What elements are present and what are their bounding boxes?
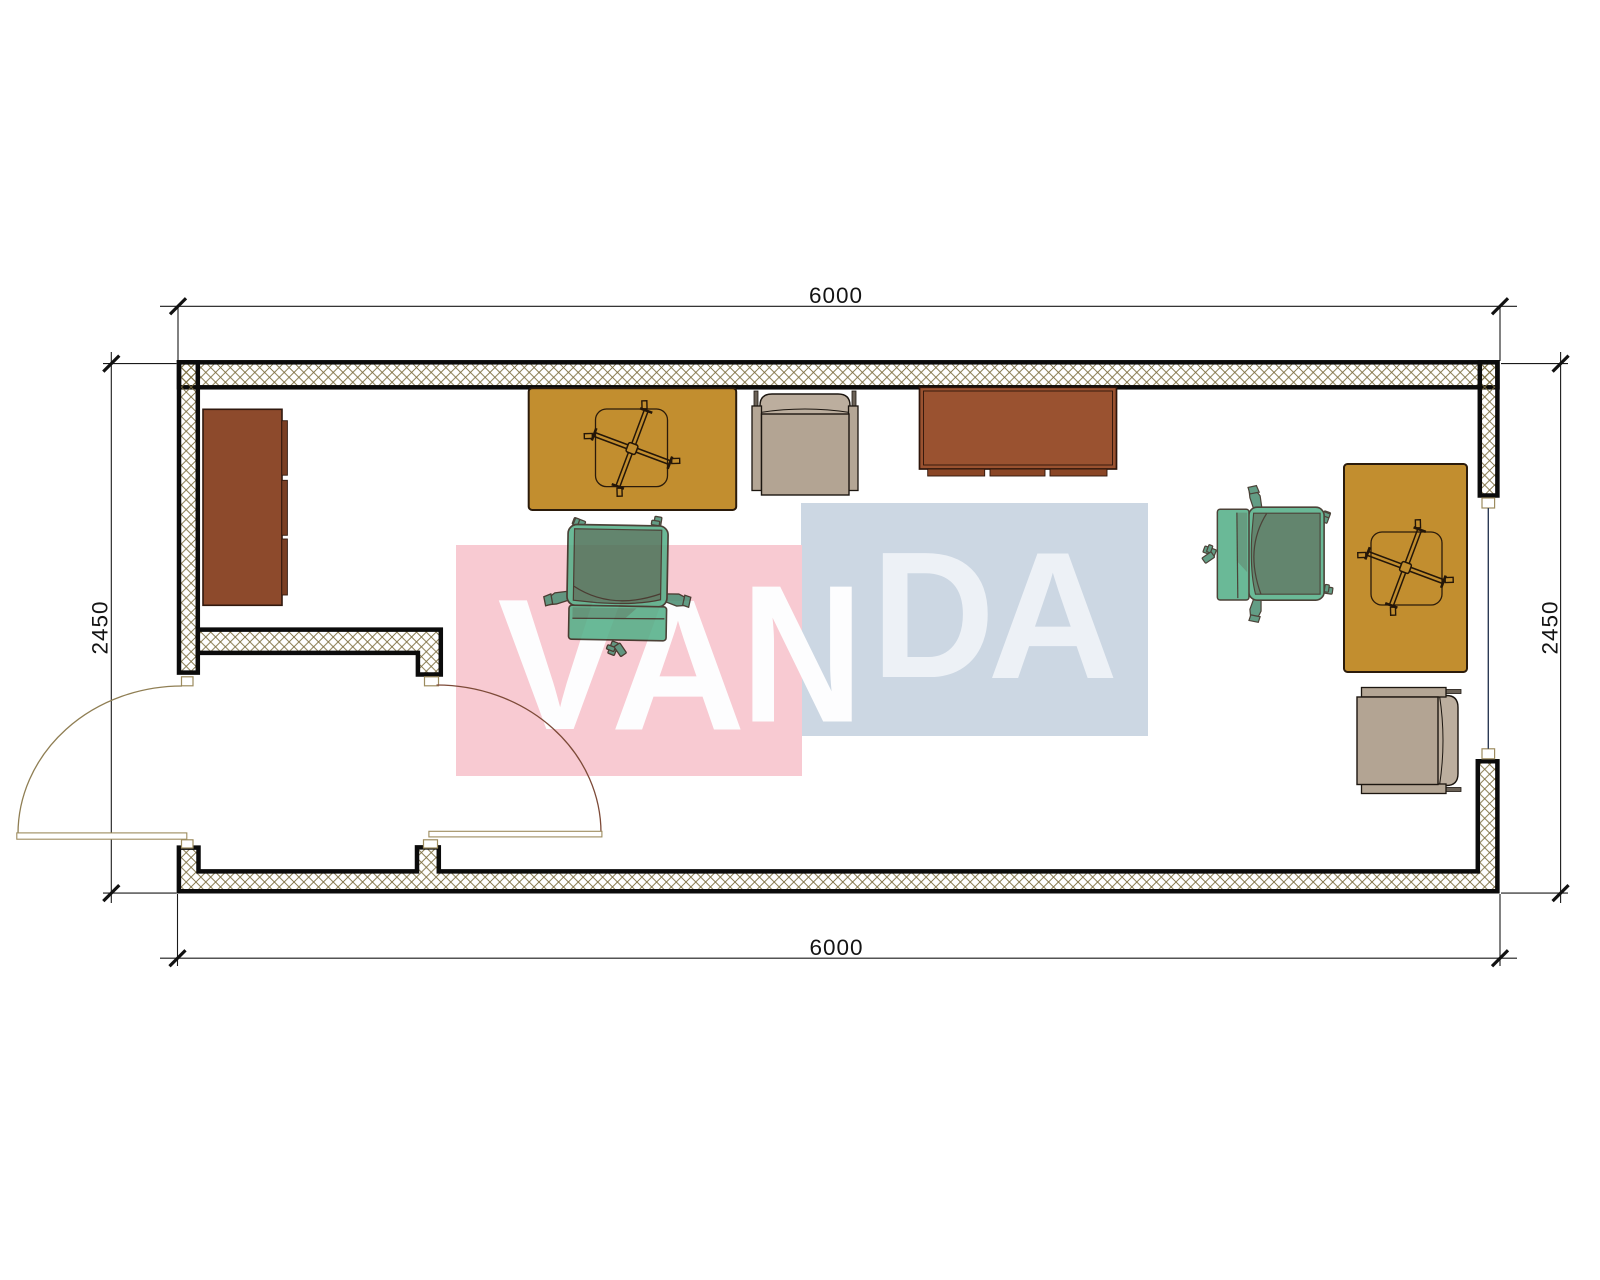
svg-text:6000: 6000 (809, 935, 863, 960)
svg-text:A: A (988, 515, 1119, 717)
svg-text:D: D (871, 515, 994, 716)
svg-text:2450: 2450 (88, 600, 113, 654)
svg-text:2450: 2450 (1538, 600, 1563, 654)
svg-text:N: N (741, 544, 863, 764)
svg-text:6000: 6000 (809, 283, 863, 308)
